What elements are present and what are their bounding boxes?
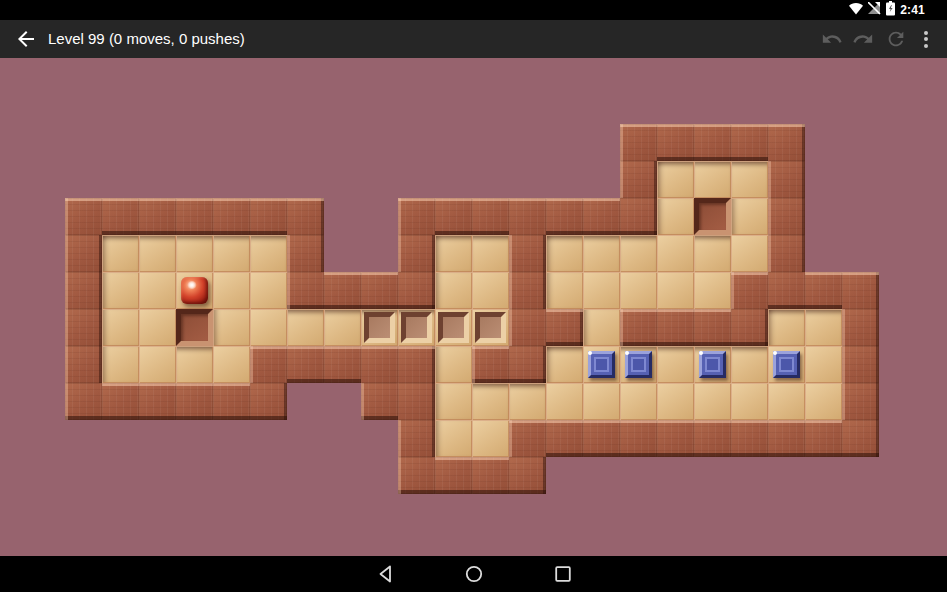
wall-tile [546, 198, 583, 235]
floor-tile[interactable] [583, 272, 620, 309]
floor-tile[interactable] [213, 235, 250, 272]
wall-tile [250, 383, 287, 420]
wall-tile [694, 309, 731, 346]
floor-tile[interactable] [176, 235, 213, 272]
floor-tile[interactable] [176, 346, 213, 383]
floor-tile[interactable] [694, 272, 731, 309]
floor-tile[interactable] [620, 272, 657, 309]
wall-tile [768, 235, 805, 272]
wall-tile [509, 420, 546, 457]
floor-tile[interactable] [546, 235, 583, 272]
box-cell[interactable] [694, 346, 731, 383]
wall-tile [509, 346, 546, 383]
floor-tile[interactable] [472, 383, 509, 420]
floor-tile[interactable] [435, 420, 472, 457]
wall-tile [657, 124, 694, 161]
wall-tile [657, 420, 694, 457]
floor-tile[interactable] [768, 383, 805, 420]
floor-tile[interactable] [472, 272, 509, 309]
box-sparkle [699, 351, 703, 355]
wall-tile [324, 346, 361, 383]
box[interactable] [699, 351, 726, 378]
floor-tile[interactable] [657, 383, 694, 420]
player-ball[interactable] [181, 277, 208, 304]
navigation-bar [0, 556, 947, 592]
player-cell[interactable] [176, 272, 213, 309]
status-icons: 2:41 [849, 0, 925, 20]
floor-tile[interactable] [620, 235, 657, 272]
wall-tile [842, 309, 879, 346]
floor-tile[interactable] [139, 346, 176, 383]
home-circle-icon[interactable] [462, 562, 486, 586]
wall-tile [139, 198, 176, 235]
box[interactable] [773, 351, 800, 378]
wall-tile [768, 272, 805, 309]
wall-tile [65, 198, 102, 235]
wall-tile [842, 383, 879, 420]
floor-tile[interactable] [546, 272, 583, 309]
floor-tile[interactable] [250, 309, 287, 346]
wall-tile [398, 235, 435, 272]
floor-tile[interactable] [324, 309, 361, 346]
wall-tile [546, 309, 583, 346]
floor-tile[interactable] [102, 309, 139, 346]
wall-tile [731, 124, 768, 161]
wall-tile [102, 383, 139, 420]
box-cell[interactable] [583, 346, 620, 383]
back-arrow-icon[interactable] [14, 27, 38, 51]
floor-tile[interactable] [694, 383, 731, 420]
redo-icon[interactable] [852, 28, 874, 50]
wall-tile [472, 198, 509, 235]
wall-tile [694, 124, 731, 161]
floor-tile[interactable] [509, 383, 546, 420]
wall-tile [213, 198, 250, 235]
goal-pit [438, 312, 469, 343]
floor-tile[interactable] [435, 235, 472, 272]
page-title: Level 99 (0 moves, 0 pushes) [48, 20, 245, 58]
back-triangle-icon[interactable] [374, 562, 398, 586]
wall-tile [842, 272, 879, 309]
box-cell[interactable] [620, 346, 657, 383]
wall-tile [361, 346, 398, 383]
wall-tile [324, 272, 361, 309]
goal-pit [475, 312, 506, 343]
floor-tile[interactable] [805, 383, 842, 420]
floor-tile[interactable] [583, 383, 620, 420]
floor-tile[interactable] [731, 346, 768, 383]
wall-tile [731, 272, 768, 309]
wall-tile [546, 420, 583, 457]
goal-pit [401, 312, 432, 343]
wifi-icon [849, 1, 863, 19]
wall-tile [250, 346, 287, 383]
box-sparkle [773, 351, 777, 355]
wall-tile [509, 272, 546, 309]
floor-tile[interactable] [250, 272, 287, 309]
floor-tile[interactable] [435, 383, 472, 420]
wall-tile [509, 198, 546, 235]
goal-tile[interactable] [398, 309, 435, 346]
floor-tile[interactable] [657, 272, 694, 309]
floor-tile[interactable] [139, 309, 176, 346]
wall-tile [509, 235, 546, 272]
wall-tile [620, 420, 657, 457]
box-inner-face [631, 357, 646, 372]
wall-tile [398, 420, 435, 457]
floor-tile[interactable] [731, 198, 768, 235]
wall-tile [102, 198, 139, 235]
box-sparkle [625, 351, 629, 355]
box[interactable] [588, 351, 615, 378]
floor-tile[interactable] [805, 346, 842, 383]
wall-tile [398, 457, 435, 494]
screen: 2:41 Level 99 (0 moves, 0 pushes) [0, 0, 947, 592]
wall-tile [398, 383, 435, 420]
status-bar: 2:41 [0, 0, 947, 20]
goal-tile[interactable] [435, 309, 472, 346]
floor-tile[interactable] [102, 272, 139, 309]
wall-tile [472, 457, 509, 494]
floor-tile[interactable] [731, 161, 768, 198]
wall-tile [65, 383, 102, 420]
wall-tile [287, 346, 324, 383]
box-inner-face [779, 357, 794, 372]
no-signal-icon [868, 1, 881, 19]
undo-icon[interactable] [821, 28, 843, 50]
floor-tile[interactable] [102, 235, 139, 272]
wall-tile [768, 161, 805, 198]
wall-tile [768, 198, 805, 235]
wall-tile [65, 309, 102, 346]
wall-tile [768, 420, 805, 457]
wall-tile [805, 272, 842, 309]
game-area [0, 58, 947, 556]
floor-tile[interactable] [657, 235, 694, 272]
floor-tile[interactable] [731, 383, 768, 420]
goal-tile[interactable] [361, 309, 398, 346]
wall-tile [176, 383, 213, 420]
floor-tile[interactable] [435, 272, 472, 309]
wall-tile [657, 309, 694, 346]
wall-tile [842, 420, 879, 457]
wall-tile [65, 346, 102, 383]
goal-tile[interactable] [472, 309, 509, 346]
wall-tile [398, 272, 435, 309]
floor-tile[interactable] [805, 309, 842, 346]
floor-tile[interactable] [768, 309, 805, 346]
wall-tile [805, 420, 842, 457]
wall-tile [139, 383, 176, 420]
restart-icon[interactable] [885, 28, 907, 50]
floor-tile[interactable] [657, 161, 694, 198]
recents-square-icon[interactable] [551, 562, 575, 586]
clock-text: 2:41 [900, 3, 925, 17]
floor-tile[interactable] [731, 235, 768, 272]
box-sparkle [588, 351, 592, 355]
wall-tile [287, 198, 324, 235]
wall-tile [583, 198, 620, 235]
floor-tile[interactable] [213, 346, 250, 383]
wall-tile [213, 383, 250, 420]
wall-pillar [694, 198, 731, 235]
floor-tile[interactable] [287, 309, 324, 346]
floor-tile[interactable] [583, 309, 620, 346]
wall-tile [731, 420, 768, 457]
wall-tile [176, 198, 213, 235]
floor-tile[interactable] [213, 272, 250, 309]
wall-tile [361, 383, 398, 420]
floor-tile[interactable] [139, 235, 176, 272]
wall-tile [620, 198, 657, 235]
floor-tile[interactable] [213, 309, 250, 346]
wall-pillar [176, 309, 213, 346]
wall-tile [509, 457, 546, 494]
box[interactable] [625, 351, 652, 378]
wall-tile [620, 309, 657, 346]
box-inner-face [705, 357, 720, 372]
floor-tile[interactable] [694, 161, 731, 198]
wall-tile [361, 272, 398, 309]
floor-tile[interactable] [472, 235, 509, 272]
wall-tile [620, 124, 657, 161]
goal-pit [364, 312, 395, 343]
floor-tile[interactable] [583, 235, 620, 272]
board[interactable] [65, 124, 879, 494]
wall-tile [287, 235, 324, 272]
wall-tile [398, 346, 435, 383]
floor-tile[interactable] [546, 383, 583, 420]
wall-tile [398, 198, 435, 235]
wall-tile [287, 272, 324, 309]
floor-tile[interactable] [435, 346, 472, 383]
floor-tile[interactable] [102, 346, 139, 383]
wall-tile [694, 420, 731, 457]
box-cell[interactable] [768, 346, 805, 383]
ball-shine [187, 281, 197, 289]
wall-tile [65, 235, 102, 272]
floor-tile[interactable] [250, 235, 287, 272]
wall-tile [472, 346, 509, 383]
app-bar: Level 99 (0 moves, 0 pushes) [0, 20, 947, 58]
wall-tile [768, 124, 805, 161]
wall-tile [509, 309, 546, 346]
floor-tile[interactable] [546, 346, 583, 383]
floor-tile[interactable] [139, 272, 176, 309]
floor-tile[interactable] [657, 346, 694, 383]
wall-tile [250, 198, 287, 235]
floor-tile[interactable] [472, 420, 509, 457]
wall-tile [435, 198, 472, 235]
overflow-menu-icon[interactable] [917, 27, 935, 51]
wall-tile [620, 161, 657, 198]
floor-tile[interactable] [657, 198, 694, 235]
floor-tile[interactable] [620, 383, 657, 420]
box-inner-face [594, 357, 609, 372]
wall-tile [65, 272, 102, 309]
wall-tile [842, 346, 879, 383]
wall-tile [435, 457, 472, 494]
wall-tile [583, 420, 620, 457]
battery-charging-icon [886, 1, 895, 20]
wall-tile [731, 309, 768, 346]
floor-tile[interactable] [694, 235, 731, 272]
